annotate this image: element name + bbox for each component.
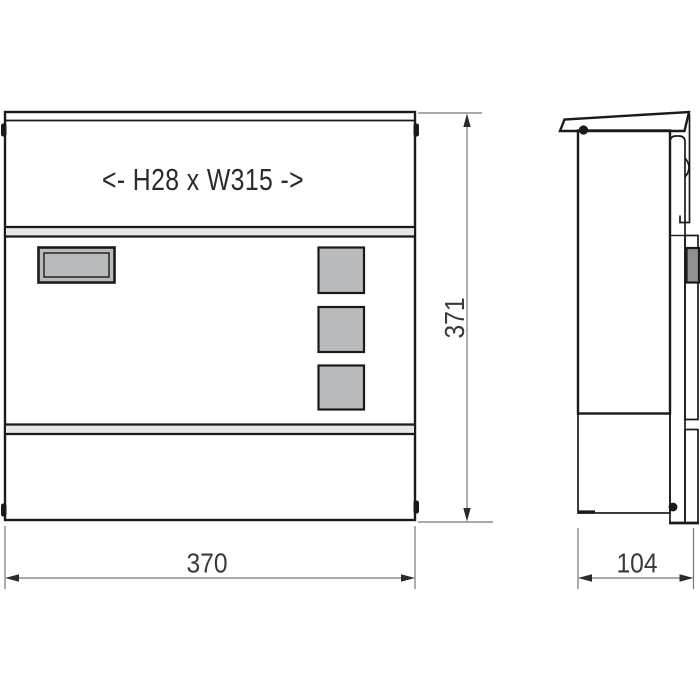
front-view: <- H28 x W315 -> — [1, 112, 419, 520]
technical-drawing: <- H28 x W315 -> — [0, 0, 700, 700]
width-arrow-left — [5, 574, 19, 581]
rear-inner-rail — [670, 136, 685, 523]
drawing-svg: <- H28 x W315 -> — [0, 0, 700, 700]
height-dimension-label: 371 — [439, 297, 471, 338]
side-body — [578, 131, 670, 414]
viewing-window-2 — [319, 307, 365, 352]
side-view — [560, 112, 699, 523]
width-arrow-right — [401, 574, 415, 581]
hinge-dot-top — [579, 125, 588, 134]
hinge-pin-top-left — [1, 124, 7, 137]
height-arrow-up — [463, 114, 470, 128]
slot-size-label: <- H28 x W315 -> — [102, 162, 304, 196]
hinge-dot-bottom — [669, 503, 678, 512]
lower-separator-band — [6, 426, 414, 434]
depth-arrow-left — [578, 574, 592, 581]
depth-dimension-label: 104 — [616, 547, 657, 579]
viewing-window-3 — [319, 366, 365, 410]
viewing-window-1 — [319, 248, 365, 294]
width-dimension-label: 370 — [186, 547, 227, 579]
lower-compartment — [578, 414, 670, 514]
outer-rail-lower — [685, 430, 698, 524]
hinge-pin-bottom-left — [1, 504, 7, 517]
hinge-pin-bottom-right — [414, 501, 420, 514]
flap-separator-band — [6, 228, 414, 236]
depth-arrow-right — [680, 574, 694, 581]
hinge-pin-top-right — [414, 124, 420, 137]
lock-knob — [687, 248, 700, 283]
height-arrow-down — [463, 508, 470, 522]
